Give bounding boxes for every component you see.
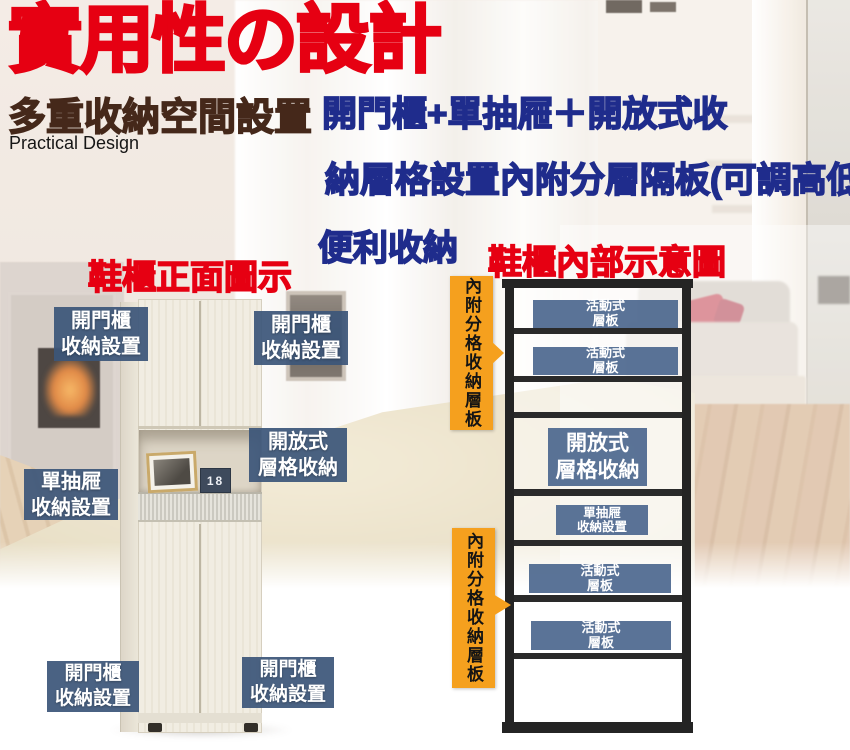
promo-page: 18 活動式 層板 活動式 層板 開放式 層格收納 單抽屜 收納設置 活動式 層… (0, 0, 850, 750)
front-label-open-shelf: 開放式 層格收納 (249, 428, 347, 482)
diagram-left-side (505, 287, 514, 723)
front-view-heading: 鞋櫃正面圖示 (88, 250, 292, 299)
callout-arrow-icon (493, 594, 511, 616)
cabinet-foot (244, 723, 258, 732)
diagram-shelf (514, 540, 682, 546)
diagram-shelf (514, 412, 682, 418)
diagram-label-movable-shelf: 活動式 層板 (533, 300, 678, 328)
front-label-door-bottom-right: 開門櫃 收納設置 (242, 657, 334, 708)
description-line-3: 便利收納 (318, 220, 458, 271)
diagram-shelf (514, 489, 682, 496)
diagram-shelf (514, 376, 682, 382)
page-subtitle-english: Practical Design (9, 133, 139, 154)
front-label-door-bottom-left: 開門櫃 收納設置 (47, 661, 139, 712)
inner-view-heading: 鞋櫃內部示意圖 (488, 235, 726, 284)
page-title: 實用性の設計 (8, 0, 440, 80)
front-label-door-top-right: 開門櫃 收納設置 (254, 311, 348, 365)
diagram-right-side (682, 287, 691, 723)
cabinet-door-seam (199, 301, 201, 426)
front-label-door-top-left: 開門櫃 收納設置 (54, 307, 148, 361)
diagram-label-single-drawer: 單抽屜 收納設置 (556, 505, 648, 535)
description-line-2: 納層格設置內附分層隔板(可調高低) (325, 152, 850, 203)
diagram-shelf (514, 595, 682, 602)
cabinet-foot (148, 723, 162, 732)
cabinet-drawer (138, 492, 262, 522)
decor-picture-photo (153, 458, 190, 486)
decor-desk-calendar: 18 (200, 468, 231, 493)
side-banner-upper: 內附分格收納層板 (450, 276, 493, 430)
diagram-bottom-cap (502, 722, 693, 733)
diagram-shelf (514, 653, 682, 659)
side-banner-lower: 內附分格收納層板 (452, 528, 495, 688)
cabinet-door-seam (199, 524, 201, 713)
front-label-single-drawer: 單抽屜 收納設置 (24, 469, 118, 520)
decor-picture-frame (146, 451, 198, 494)
description-line-1: 開門櫃+單抽屜＋開放式收 (322, 86, 727, 137)
diagram-label-movable-shelf: 活動式 層板 (529, 564, 671, 593)
diagram-label-movable-shelf: 活動式 層板 (531, 621, 671, 650)
diagram-label-movable-shelf: 活動式 層板 (533, 347, 678, 375)
callout-arrow-icon (491, 341, 504, 365)
diagram-label-open-shelf: 開放式 層格收納 (548, 428, 647, 486)
cabinet-top-doors (138, 301, 262, 429)
